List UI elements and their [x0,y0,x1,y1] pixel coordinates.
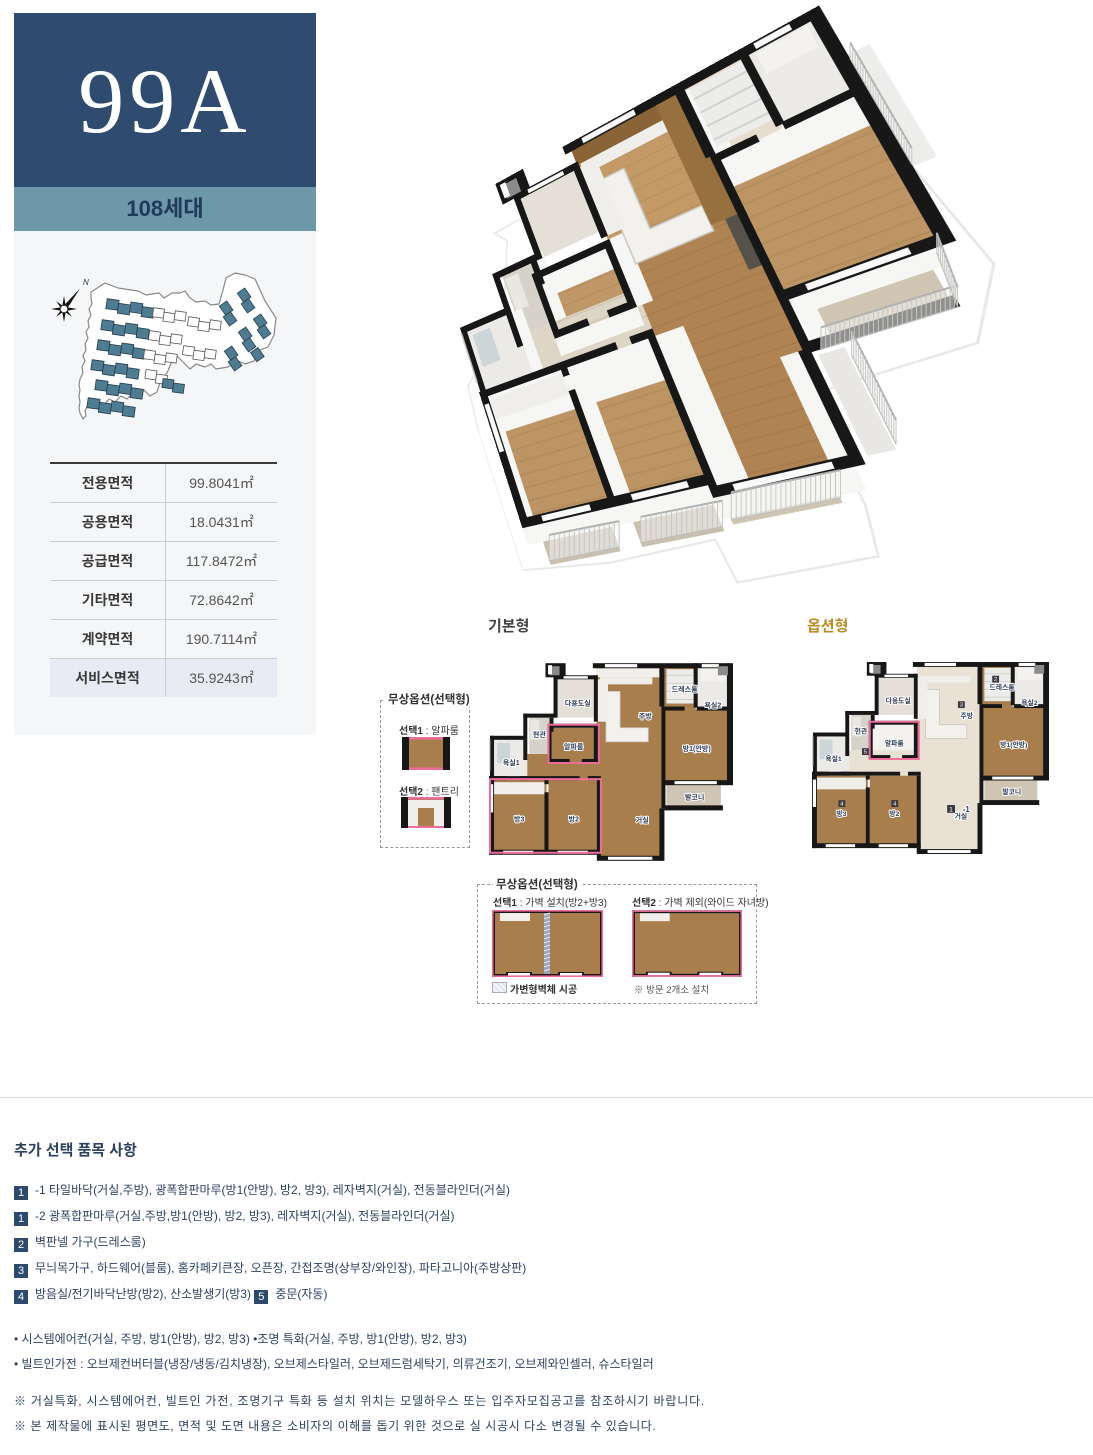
svg-text:주방: 주방 [960,711,973,720]
svg-text:욕실2: 욕실2 [704,701,721,710]
svg-text:욕실2: 욕실2 [1021,698,1038,707]
svg-text:알파룸: 알파룸 [885,738,905,747]
svg-text:알파룸: 알파룸 [564,742,584,751]
svg-text:현관: 현관 [533,730,546,739]
svg-text:드레스룸: 드레스룸 [672,684,698,693]
svg-text:욕실1: 욕실1 [503,758,520,767]
svg-text:드레스룸: 드레스룸 [989,682,1015,691]
svg-text:방1(안방): 방1(안방) [683,744,711,753]
svg-text:발코니: 발코니 [1002,787,1021,796]
svg-text:거실: 거실 [636,815,649,824]
svg-text:방2: 방2 [568,814,578,823]
svg-text:1: 1 [949,806,953,813]
svg-text:현관: 현관 [855,727,868,736]
svg-text:욕실1: 욕실1 [825,754,842,763]
svg-text:방3: 방3 [514,814,524,823]
svg-text:발코니: 발코니 [685,792,704,801]
svg-text:다용도실: 다용도실 [565,699,591,708]
svg-text:방3: 방3 [836,809,846,818]
svg-text:3: 3 [960,702,963,708]
svg-text:방1(안방): 방1(안방) [1000,740,1027,749]
svg-text:주방: 주방 [639,712,652,721]
svg-text:다용도실: 다용도실 [886,696,911,705]
svg-text:-1: -1 [963,805,971,814]
svg-text:방2: 방2 [889,809,899,818]
svg-text:2: 2 [994,677,997,683]
